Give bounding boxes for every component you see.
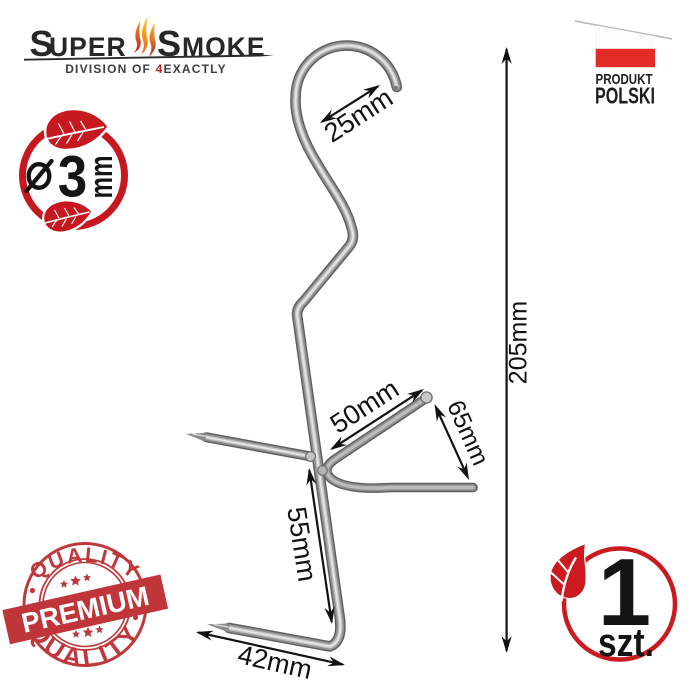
- svg-text:mm: mm: [83, 156, 119, 199]
- svg-text:POLSKI: POLSKI: [595, 83, 655, 109]
- svg-text:205mm: 205mm: [505, 301, 533, 384]
- svg-text:szt.: szt.: [598, 621, 654, 665]
- svg-text:DIVISION OF 4EXACTLY: DIVISION OF 4EXACTLY: [65, 62, 227, 76]
